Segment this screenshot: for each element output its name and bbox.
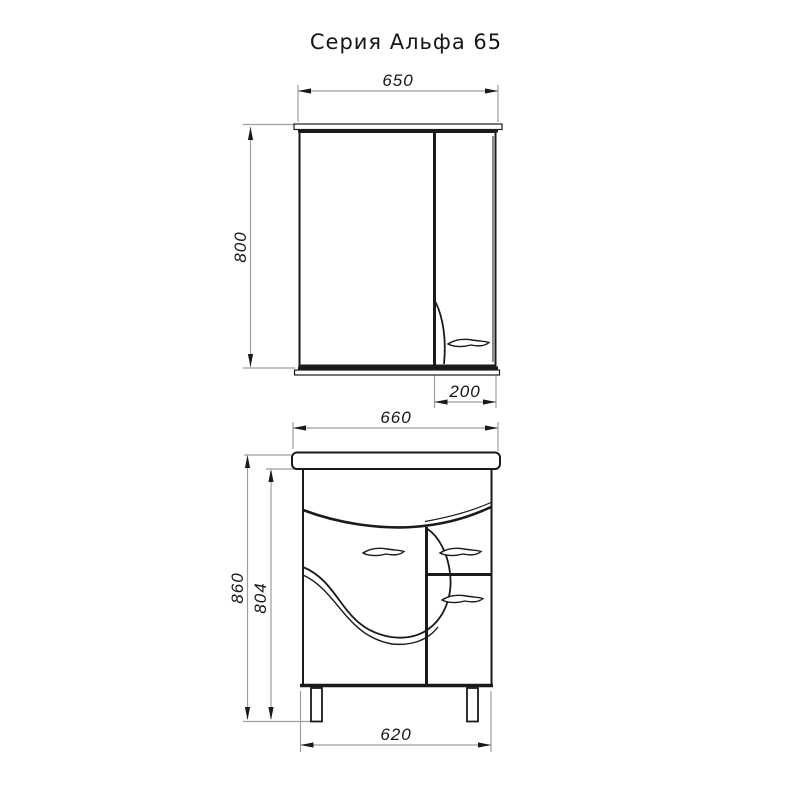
vanity-unit-drawing — [292, 453, 500, 722]
dim-label-vanity-base-width: 620 — [296, 725, 496, 745]
mirror-body — [300, 132, 496, 366]
dim-label-mirror-height: 800 — [231, 222, 251, 272]
mirror-cabinet-drawing — [294, 124, 502, 375]
right-leg — [467, 688, 478, 722]
dim-label-side-cabinet-width: 200 — [434, 382, 496, 402]
mirror-top-cover — [294, 124, 502, 130]
vanity-body — [303, 469, 492, 686]
technical-drawing-page: Серия Альфа 65 — [0, 0, 800, 800]
left-leg — [311, 688, 322, 722]
furniture-dimension-drawing — [0, 0, 800, 800]
dim-label-mirror-width: 650 — [298, 71, 498, 91]
dim-label-vanity-top-width: 660 — [296, 408, 496, 428]
washbasin-top — [292, 453, 500, 470]
mirror-bottom-shelf — [295, 370, 500, 375]
dim-label-vanity-body-height: 804 — [251, 573, 271, 623]
dim-label-vanity-overall-height: 860 — [228, 563, 248, 613]
